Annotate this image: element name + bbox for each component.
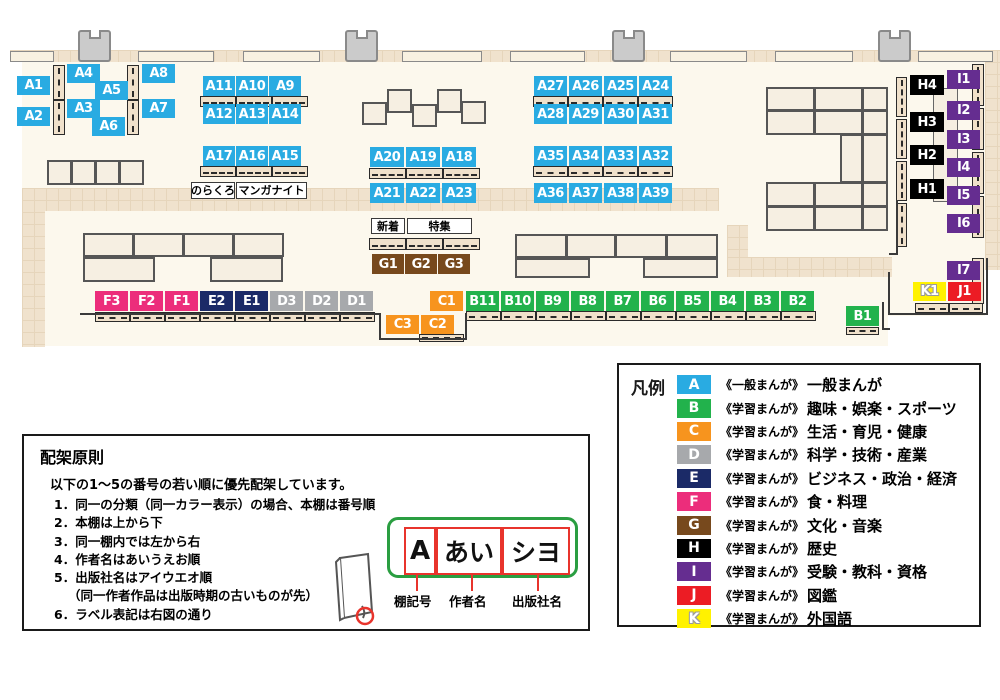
shelf-label-a24: A24 <box>639 76 672 96</box>
shelf-label-b2: B2 <box>781 291 814 311</box>
shelf-label-h4: H4 <box>910 75 944 95</box>
shelf-label-a23: A23 <box>442 183 476 203</box>
legend-series: 《学習まんが》 <box>720 610 804 627</box>
principle-item-2: 2．本棚は上から下 <box>54 514 375 532</box>
bookshelf-strip <box>406 238 443 250</box>
shelf-label-i1: I1 <box>947 70 980 89</box>
shelf-label-a21: A21 <box>370 183 404 203</box>
legend-box: 凡例 A《一般まんが》一般まんがB《学習まんが》趣味・娯楽・スポーツC《学習まん… <box>617 363 981 627</box>
label-example-publisher: シヨ <box>502 527 570 575</box>
shelf-label-a33: A33 <box>604 146 637 166</box>
wall-segment <box>896 200 898 253</box>
shelf-label-i3: I3 <box>947 130 980 149</box>
principle-item-1: 1．同一の分類（同一カラー表示）の場合、本棚は番号順 <box>54 496 375 514</box>
shelf-label-a19: A19 <box>406 147 440 167</box>
bookshelf-strip <box>369 168 406 179</box>
bookshelf-strip <box>949 303 983 313</box>
legend-series: 《学習まんが》 <box>720 446 804 463</box>
legend-chip-k: K <box>677 609 711 628</box>
shelf-label-g3: G3 <box>438 254 470 274</box>
bookshelf-strip <box>200 166 236 177</box>
table <box>119 160 144 185</box>
legend-rows: A《一般まんが》一般まんがB《学習まんが》趣味・娯楽・スポーツC《学習まんが》生… <box>677 373 957 630</box>
walkway <box>727 225 748 259</box>
annotation-line <box>416 573 418 591</box>
pillar-notch <box>889 30 901 39</box>
bookshelf-strip <box>603 166 638 177</box>
shelf-label-b3: B3 <box>746 291 779 311</box>
shelf-label-d3: D3 <box>270 291 303 311</box>
legend-series: 《学習まんが》 <box>720 540 804 557</box>
shelf-label-c3: C3 <box>386 315 419 334</box>
legend-category-label: ビジネス・政治・経済 <box>807 468 957 489</box>
table <box>412 104 437 127</box>
table <box>840 134 863 183</box>
shelf-label-a5: A5 <box>95 81 128 100</box>
legend-chip-d: D <box>677 445 711 464</box>
bookshelf-strip <box>915 303 949 313</box>
legend-chip-f: F <box>677 492 711 511</box>
table <box>814 182 863 207</box>
legend-item-i: I《学習まんが》受験・教科・資格 <box>677 560 957 583</box>
shelf-label-a35: A35 <box>534 146 567 166</box>
bookshelf-strip <box>127 65 139 100</box>
table <box>83 233 134 257</box>
shelf-label-a26: A26 <box>569 76 602 96</box>
wall-segment <box>889 253 898 255</box>
walkway <box>22 188 45 347</box>
pillar-notch <box>356 30 368 39</box>
table <box>814 206 863 231</box>
shelf-label-c2: C2 <box>421 315 454 334</box>
legend-item-k: K《学習まんが》外国語 <box>677 607 957 630</box>
wall-segment <box>986 258 988 315</box>
table <box>766 206 815 231</box>
bookshelf-strip <box>571 311 606 321</box>
wall-window <box>10 51 54 62</box>
table <box>437 89 462 113</box>
legend-category-label: 食・料理 <box>807 491 867 512</box>
wall-segment <box>80 313 380 315</box>
wall-segment <box>888 272 890 315</box>
shelf-label-a12: A12 <box>203 104 235 124</box>
pillar <box>345 30 378 62</box>
legend-category-label: 歴史 <box>807 538 837 559</box>
area-label-norakuro: のらくろ <box>191 182 235 199</box>
table <box>515 234 567 258</box>
bookshelf-strip <box>443 238 480 250</box>
pillar-notch <box>89 30 101 39</box>
legend-chip-g: G <box>677 516 711 535</box>
shelf-label-a29: A29 <box>569 104 602 124</box>
table <box>233 233 284 257</box>
bookshelf-strip <box>369 238 406 250</box>
bookshelf-strip <box>536 311 571 321</box>
label-example-author: あい <box>436 527 502 575</box>
table <box>47 160 72 185</box>
shelf-label-h3: H3 <box>910 112 944 132</box>
table <box>515 258 590 278</box>
bookshelf-strip <box>746 311 781 321</box>
legend-item-h: H《学習まんが》歴史 <box>677 537 957 560</box>
shelf-label-g1: G1 <box>372 254 404 274</box>
legend-chip-e: E <box>677 469 711 488</box>
shelf-label-h1: H1 <box>910 179 944 199</box>
legend-series: 《学習まんが》 <box>720 400 804 417</box>
legend-item-d: D《学習まんが》科学・技術・産業 <box>677 443 957 466</box>
shelf-label-a14: A14 <box>269 104 301 124</box>
wall-segment <box>379 313 381 340</box>
wall-segment <box>882 302 884 330</box>
legend-chip-a: A <box>677 375 711 394</box>
table <box>766 182 815 207</box>
legend-chip-b: B <box>677 399 711 418</box>
bookshelf-strip <box>466 311 501 321</box>
shelf-label-a6: A6 <box>92 117 125 136</box>
table <box>210 257 283 282</box>
table <box>615 234 667 258</box>
annotation-line <box>537 573 539 591</box>
shelf-label-d1: D1 <box>340 291 373 311</box>
shelf-label-a28: A28 <box>534 104 567 124</box>
floor-edge <box>888 316 1000 346</box>
shelf-label-b7: B7 <box>606 291 639 311</box>
legend-category-label: 文化・音楽 <box>807 515 882 536</box>
legend-series: 《学習まんが》 <box>720 587 804 604</box>
bookshelf-strip <box>53 65 65 100</box>
shelf-label-a36: A36 <box>534 183 567 203</box>
bookshelf-strip <box>896 77 907 117</box>
wall-window <box>918 51 993 62</box>
principles-box: 配架原則 以下の1～5の番号の若い順に優先配架しています。 1．同一の分類（同一… <box>22 434 590 631</box>
table <box>862 87 888 111</box>
shelf-label-a34: A34 <box>569 146 602 166</box>
legend-item-e: E《学習まんが》ビジネス・政治・経済 <box>677 467 957 490</box>
shelf-label-a20: A20 <box>370 147 404 167</box>
shelf-label-i5: I5 <box>947 186 980 205</box>
shelf-label-a8: A8 <box>142 64 175 83</box>
bookshelf-strip <box>127 100 139 135</box>
table <box>71 160 96 185</box>
table <box>766 87 815 111</box>
shelf-label-f2: F2 <box>130 291 163 311</box>
bookshelf-strip <box>781 311 816 321</box>
shelf-label-b10: B10 <box>501 291 534 311</box>
book-illustration <box>324 548 384 628</box>
legend-series: 《学習まんが》 <box>720 517 804 534</box>
shelf-label-a25: A25 <box>604 76 637 96</box>
table <box>387 89 412 113</box>
shelf-label-b6: B6 <box>641 291 674 311</box>
legend-item-c: C《学習まんが》生活・育児・健康 <box>677 420 957 443</box>
shelf-label-b11: B11 <box>466 291 499 311</box>
shelf-label-a11: A11 <box>203 76 235 96</box>
legend-series: 《学習まんが》 <box>720 470 804 487</box>
shelf-label-a32: A32 <box>639 146 672 166</box>
legend-category-label: 趣味・娯楽・スポーツ <box>807 398 957 419</box>
shelf-label-b8: B8 <box>571 291 604 311</box>
wall-window <box>510 51 585 62</box>
shelf-label-a3: A3 <box>67 99 100 118</box>
shelf-label-b9: B9 <box>536 291 569 311</box>
shelf-label-a22: A22 <box>406 183 440 203</box>
table <box>566 234 616 258</box>
shelf-label-b4: B4 <box>711 291 744 311</box>
annotation-publisher: 出版社名 <box>512 591 562 610</box>
table <box>766 110 815 135</box>
legend-category-label: 一般まんが <box>807 374 882 395</box>
shelf-label-a17: A17 <box>203 146 235 166</box>
legend-chip-i: I <box>677 562 711 581</box>
bookshelf-strip <box>53 100 65 135</box>
legend-chip-h: H <box>677 539 711 558</box>
shelf-label-a18: A18 <box>442 147 476 167</box>
wall-segment <box>379 338 467 340</box>
shelf-label-a30: A30 <box>604 104 637 124</box>
shelf-label-g2: G2 <box>405 254 437 274</box>
bookshelf-strip <box>443 168 480 179</box>
table <box>862 134 888 183</box>
pillar <box>612 30 645 62</box>
legend-chip-j: J <box>677 586 711 605</box>
walkway <box>727 257 892 277</box>
annotation-shelf-code: 棚記号 <box>394 591 432 610</box>
wall-segment <box>465 313 467 340</box>
legend-series: 《学習まんが》 <box>720 493 804 510</box>
shelf-label-h2: H2 <box>910 145 944 165</box>
shelf-label-a39: A39 <box>639 183 672 203</box>
annotation-line <box>471 573 473 591</box>
shelf-label-a13: A13 <box>236 104 268 124</box>
legend-category-label: 科学・技術・産業 <box>807 444 927 465</box>
bookshelf-strip <box>896 161 907 201</box>
legend-item-g: G《学習まんが》文化・音楽 <box>677 513 957 536</box>
bookshelf-strip <box>896 119 907 159</box>
bookshelf-strip <box>568 166 603 177</box>
wall-window <box>670 51 747 62</box>
shelf-label-b1: B1 <box>846 306 879 326</box>
shelf-label-d2: D2 <box>305 291 338 311</box>
label-example-plate: A あい シヨ <box>387 517 578 578</box>
table <box>183 233 234 257</box>
bookshelf-strip <box>236 166 272 177</box>
wall-segment <box>888 313 988 315</box>
shelf-label-a37: A37 <box>569 183 602 203</box>
area-label-shinchaku: 新着 <box>371 218 405 234</box>
legend-category-label: 外国語 <box>807 608 852 629</box>
bookshelf-strip <box>272 166 308 177</box>
shelf-label-c1: C1 <box>430 291 463 311</box>
bookshelf-strip <box>501 311 536 321</box>
area-label-tokushu: 特集 <box>407 218 472 234</box>
wall-window <box>243 51 320 62</box>
shelf-label-a9: A9 <box>269 76 301 96</box>
legend-item-b: B《学習まんが》趣味・娯楽・スポーツ <box>677 396 957 419</box>
table <box>814 110 863 135</box>
table <box>862 206 888 231</box>
legend-item-f: F《学習まんが》食・料理 <box>677 490 957 513</box>
walkway <box>985 50 1000 270</box>
shelf-label-a31: A31 <box>639 104 672 124</box>
table <box>95 160 120 185</box>
pillar <box>878 30 911 62</box>
legend-series: 《学習まんが》 <box>720 423 804 440</box>
shelf-label-a15: A15 <box>269 146 301 166</box>
shelf-label-i4: I4 <box>947 158 980 177</box>
pillar <box>78 30 111 62</box>
shelf-label-a38: A38 <box>604 183 637 203</box>
label-example-shelf-code: A <box>404 527 436 575</box>
legend-chip-c: C <box>677 422 711 441</box>
shelf-label-k1: K1 <box>913 282 946 301</box>
area-label-manga_night: マンガナイト <box>236 182 307 199</box>
table <box>362 102 387 125</box>
wall-window <box>138 51 214 62</box>
legend-item-a: A《一般まんが》一般まんが <box>677 373 957 396</box>
bookshelf-strip <box>638 166 673 177</box>
shelf-label-f3: F3 <box>95 291 128 311</box>
principles-title: 配架原則 <box>40 444 104 468</box>
principles-intro: 以下の1～5の番号の若い順に優先配架しています。 <box>50 474 352 493</box>
table <box>83 257 155 282</box>
shelf-label-a7: A7 <box>142 99 175 118</box>
wall-window <box>775 51 853 62</box>
bookshelf-strip <box>846 327 879 335</box>
legend-item-j: J《学習まんが》図鑑 <box>677 584 957 607</box>
shelf-label-j1: J1 <box>948 282 981 301</box>
wall-window <box>402 51 482 62</box>
bookshelf-strip <box>406 168 443 179</box>
wall-segment <box>882 328 890 330</box>
legend-category-label: 図鑑 <box>807 585 837 606</box>
bookshelf-strip <box>606 311 641 321</box>
legend-series: 《一般まんが》 <box>720 376 804 393</box>
legend-category-label: 受験・教科・資格 <box>807 561 927 582</box>
table <box>666 234 718 258</box>
shelf-label-i7: I7 <box>947 261 980 280</box>
shelf-label-a1: A1 <box>17 76 50 95</box>
shelf-label-e1: E1 <box>235 291 268 311</box>
shelf-label-a16: A16 <box>236 146 268 166</box>
pillar-notch <box>623 30 635 39</box>
shelf-label-a10: A10 <box>236 76 268 96</box>
bookshelf-strip <box>533 166 568 177</box>
table <box>461 101 486 124</box>
legend-title: 凡例 <box>631 374 665 399</box>
floor-map-page: A1A2A4A5A3A6A8A7A11A10A9A12A13A14A17A16A… <box>0 0 1000 700</box>
shelf-label-f1: F1 <box>165 291 198 311</box>
legend-series: 《学習まんが》 <box>720 563 804 580</box>
table <box>862 182 888 207</box>
table <box>133 233 184 257</box>
shelf-label-i6: I6 <box>947 214 980 233</box>
bookshelf-strip <box>676 311 711 321</box>
bookshelf-strip <box>711 311 746 321</box>
shelf-label-a2: A2 <box>17 107 50 126</box>
table <box>814 87 863 111</box>
table <box>643 258 718 278</box>
shelf-label-i2: I2 <box>947 101 980 120</box>
bookshelf-strip <box>641 311 676 321</box>
shelf-label-a27: A27 <box>534 76 567 96</box>
annotation-author: 作者名 <box>449 591 487 610</box>
shelf-label-e2: E2 <box>200 291 233 311</box>
legend-category-label: 生活・育児・健康 <box>807 421 927 442</box>
shelf-label-b5: B5 <box>676 291 709 311</box>
table <box>862 110 888 135</box>
